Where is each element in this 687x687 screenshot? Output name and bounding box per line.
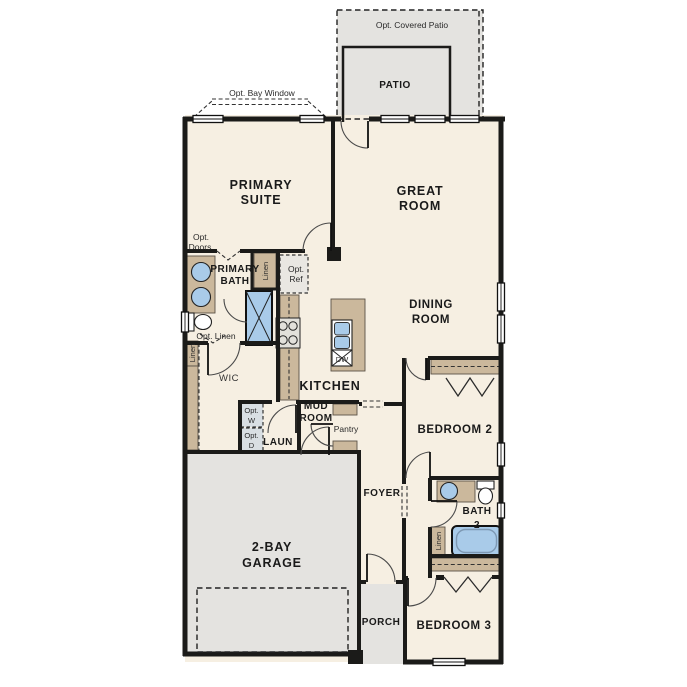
window (433, 659, 465, 666)
bedroom3-label: BEDROOM 3 (416, 620, 491, 632)
foyer-label: FOYER (364, 488, 401, 499)
window (498, 315, 505, 343)
window (450, 116, 479, 123)
wic-shelf (186, 366, 198, 450)
opt-washer-label: Opt. (244, 406, 258, 415)
linen-label: Linen (434, 532, 443, 550)
window (498, 443, 505, 466)
opt-dryer-label-2: D (249, 441, 255, 450)
dining-room-label-2: ROOM (412, 314, 450, 326)
window (193, 116, 223, 123)
great-room-label: GREAT (397, 184, 444, 198)
linen-label: Linen (261, 262, 270, 280)
linen-label: Linen (188, 344, 197, 362)
opt-linen-label: Opt. Linen (196, 331, 235, 341)
wall-column (327, 247, 341, 261)
primary-bath-label: PRIMARY (210, 264, 259, 275)
garage-label: 2-BAY (252, 540, 292, 554)
primary-suite-label-2: SUITE (241, 193, 282, 207)
bay-right-dash (308, 101, 326, 117)
porch-column (348, 650, 363, 664)
sink-icon (192, 263, 211, 282)
floor-plan: Opt. Covered Patio PATIO Opt. Bay Window… (0, 0, 687, 687)
kitchen-label: KITCHEN (299, 379, 360, 393)
dining-room-label: DINING (409, 299, 453, 311)
primary-bath-label-2: BATH (220, 276, 249, 287)
window (300, 116, 324, 123)
covered-patio-label: Opt. Covered Patio (376, 20, 449, 30)
shower-icon (246, 291, 272, 345)
opt-doors-label-2: Doors (189, 242, 212, 252)
opt-doors-label: Opt. (193, 232, 209, 242)
window (182, 312, 189, 332)
laundry-label: LAUN (263, 437, 293, 448)
sink-icon (192, 288, 211, 307)
bath2-label-2: 2 (474, 520, 480, 531)
garage-label-2: GARAGE (242, 556, 302, 570)
sink-icon (441, 483, 458, 500)
floor-plan-page: Opt. Covered Patio PATIO Opt. Bay Window… (0, 0, 687, 687)
opt-ref-label-2: Ref (289, 274, 303, 284)
primary-suite-label: PRIMARY (230, 178, 293, 192)
wic-label: WIC (219, 373, 239, 384)
window (415, 116, 445, 123)
opt-ref-label: Opt. (288, 264, 304, 274)
toilet-icon (479, 488, 493, 504)
bay-left-dash (194, 101, 212, 117)
mud-room-label: MUD (304, 401, 328, 412)
mud-room-label-2: ROOM (299, 413, 332, 424)
bedroom2-label: BEDROOM 2 (417, 424, 492, 436)
dishwasher-label: DW (336, 355, 349, 364)
bath2-label: BATH (462, 506, 491, 517)
bay-window-label: Opt. Bay Window (229, 88, 296, 98)
pantry-label: Pantry (334, 424, 359, 434)
opt-dryer-label: Opt. (244, 431, 258, 440)
opt-bay-window (194, 99, 326, 117)
sink-bowl-icon (335, 323, 350, 336)
opt-washer-label-2: W (248, 416, 256, 425)
pantry-shelf (333, 404, 357, 415)
window (498, 503, 505, 518)
window (381, 116, 409, 123)
window (498, 283, 505, 311)
toilet-icon (195, 315, 212, 330)
great-room-label-2: ROOM (399, 199, 441, 213)
porch-label: PORCH (362, 617, 401, 628)
patio-label: PATIO (379, 80, 411, 91)
sink-bowl-icon (335, 337, 350, 349)
